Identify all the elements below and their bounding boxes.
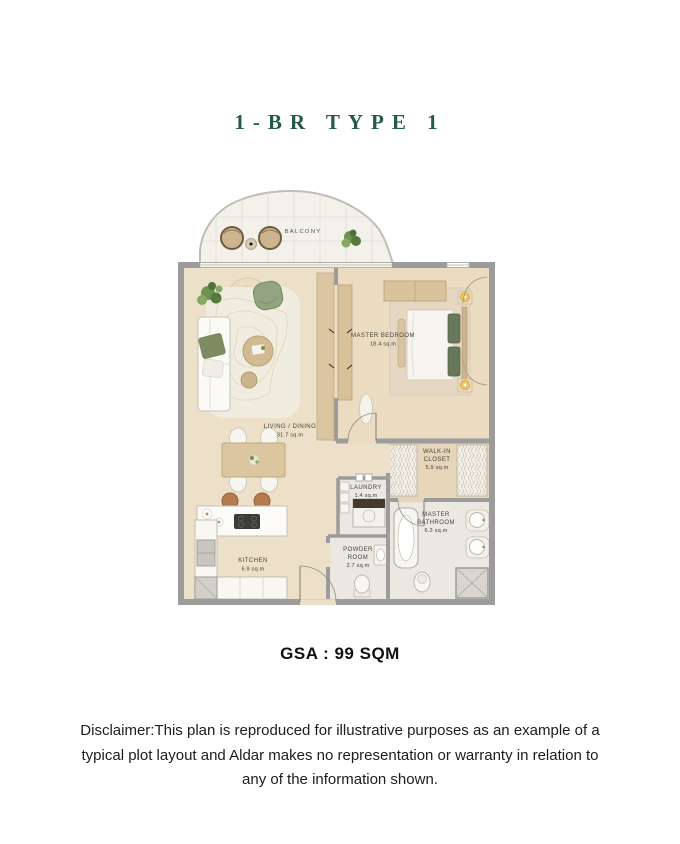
bathtub [394, 508, 418, 568]
kitchen-label: KITCHEN [238, 558, 268, 564]
shower [456, 568, 488, 598]
base-cabinets [217, 577, 287, 599]
bifold-door [356, 474, 363, 481]
sofa [198, 317, 230, 411]
toilet [414, 572, 430, 592]
bedroom-label: MASTER BEDROOM [351, 333, 415, 339]
powder-label-2: ROOM [348, 555, 368, 561]
side-table [241, 372, 257, 388]
hanging-chair [259, 227, 281, 249]
closet-label-1: WALK-IN [423, 449, 451, 455]
balcony-window [200, 263, 392, 268]
laundry-area-label: 1.4 sq.m [354, 493, 377, 499]
mirror [360, 394, 373, 424]
powder-label-1: POWDER [343, 547, 373, 553]
bedroom-area-label: 18.4 sq.m [370, 342, 397, 348]
toilet [354, 575, 370, 597]
dresser [384, 281, 446, 301]
closet-area-label: 5.9 sq.m [425, 465, 448, 471]
closet-label-2: CLOSET [424, 457, 451, 463]
balcony-label: BALCONY [285, 229, 322, 235]
bifold-door [365, 474, 372, 481]
powder-sink [374, 545, 387, 565]
floor-plan: BALCONY LIVING / DINING 31.7 sq.m MASTER… [170, 183, 510, 613]
sink [470, 540, 485, 555]
fridge [197, 540, 215, 566]
living-area-label: 31.7 sq.m [277, 433, 304, 439]
service-shaft [195, 577, 217, 599]
balcony [170, 183, 393, 264]
kitchen-area-label: 6.9 sq.m [241, 567, 264, 573]
pillow [448, 347, 460, 376]
closet-opening [386, 445, 391, 473]
floor-plan-svg: BALCONY LIVING / DINING 31.7 sq.m MASTER… [170, 183, 510, 613]
bathroom-area-label: 6.3 sq.m [424, 528, 447, 534]
nightstand [458, 379, 472, 392]
living-label: LIVING / DINING [264, 424, 316, 430]
bathroom-label-2: BATHROOM [417, 520, 455, 526]
balcony-side-table [246, 239, 257, 250]
bedroom-window [447, 263, 469, 268]
cooktop [234, 514, 260, 529]
wardrobe [457, 445, 487, 496]
washer [353, 499, 385, 527]
powder-area-label: 2.7 sq.m [346, 563, 369, 569]
pillow [448, 314, 460, 343]
bed-bench [398, 319, 405, 367]
sofa-pillow-white [202, 359, 224, 379]
powder-opening [326, 543, 331, 567]
page-title: 1-BR TYPE 1 [0, 110, 680, 135]
sink [470, 513, 485, 528]
disclaimer-text: Disclaimer:This plan is reproduced for i… [70, 719, 610, 793]
laundry-label: LAUNDRY [350, 485, 382, 491]
laundry-shelves [340, 482, 349, 513]
bathroom-label-1: MASTER [422, 512, 450, 518]
gsa-label: GSA : 99 SQM [0, 644, 680, 664]
hanging-chair [221, 227, 243, 249]
wardrobe [390, 445, 417, 496]
